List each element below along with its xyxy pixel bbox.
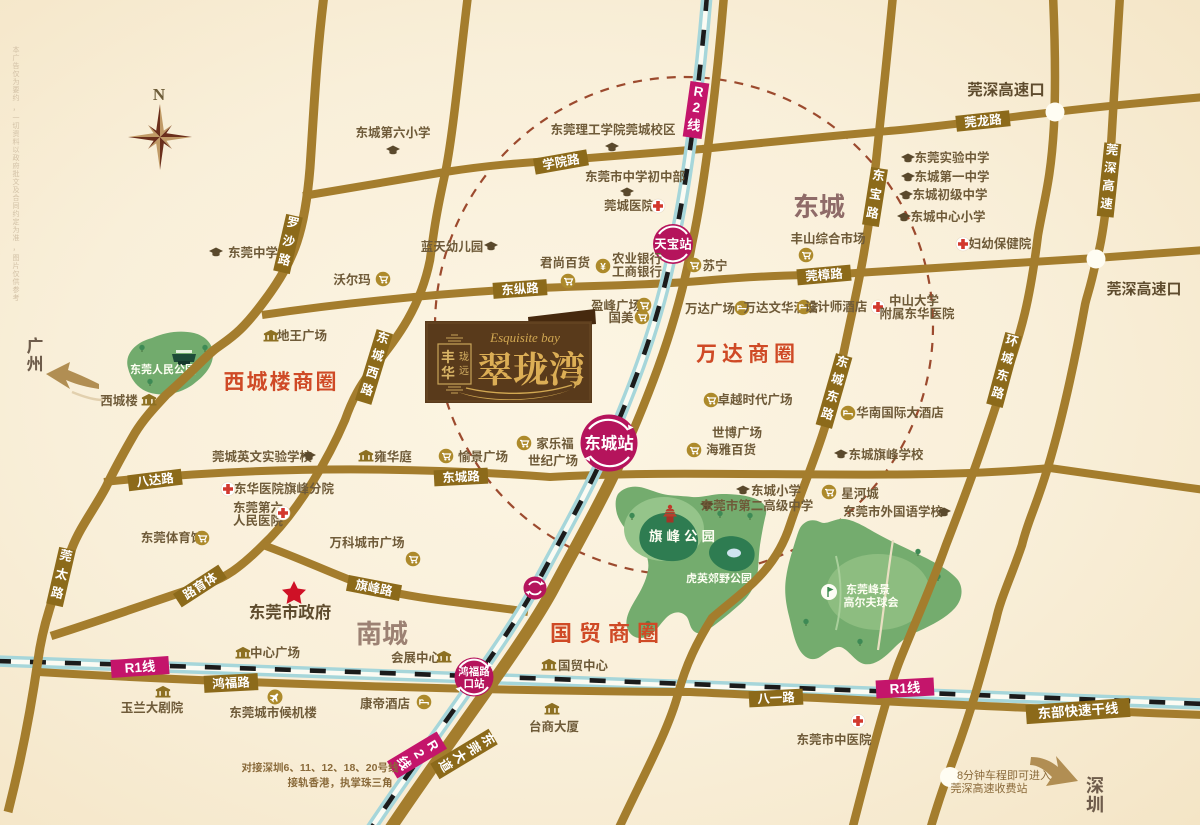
svg-text:愉景广场: 愉景广场 xyxy=(458,449,508,464)
svg-text:会展中心: 会展中心 xyxy=(391,650,442,665)
svg-text:海雅百货: 海雅百货 xyxy=(706,442,757,457)
svg-text:苏宁: 苏宁 xyxy=(702,258,727,273)
svg-text:N: N xyxy=(153,85,166,104)
svg-text:工商银行: 工商银行 xyxy=(612,264,662,279)
svg-text:国贸商圈: 国贸商圈 xyxy=(550,621,666,646)
svg-text:东莞中学: 东莞中学 xyxy=(228,245,278,260)
svg-text:Esquisite bay: Esquisite bay xyxy=(489,330,560,345)
svg-text:西城楼: 西城楼 xyxy=(100,393,138,408)
svg-text:东莞理工学院莞城校区: 东莞理工学院莞城校区 xyxy=(550,122,675,137)
svg-text:地王广场: 地王广场 xyxy=(277,328,327,343)
svg-text:旗峰公园: 旗峰公园 xyxy=(649,528,719,544)
svg-text:R1线: R1线 xyxy=(124,658,156,676)
svg-text:广: 广 xyxy=(27,337,44,356)
svg-text:东莞体育馆: 东莞体育馆 xyxy=(141,530,204,545)
svg-text:东莞实验中学: 东莞实验中学 xyxy=(914,150,989,165)
svg-text:东城旗峰学校: 东城旗峰学校 xyxy=(848,447,924,462)
svg-text:莞深高速口: 莞深高速口 xyxy=(967,80,1045,99)
svg-text:接轨香港，执掌珠三角: 接轨香港，执掌珠三角 xyxy=(288,776,393,789)
svg-text:莞城英文实验学校: 莞城英文实验学校 xyxy=(212,449,313,464)
svg-text:东莞第六: 东莞第六 xyxy=(233,500,283,515)
svg-text:鸿福路: 鸿福路 xyxy=(458,665,490,678)
svg-text:州: 州 xyxy=(27,355,44,374)
svg-text:农业银行: 农业银行 xyxy=(612,251,662,266)
svg-text:鸿福路: 鸿福路 xyxy=(212,674,251,691)
svg-text:东莞市第二高级中学: 东莞市第二高级中学 xyxy=(701,498,814,513)
svg-text:莞深高速口: 莞深高速口 xyxy=(1106,280,1181,298)
svg-text:康帝酒店: 康帝酒店 xyxy=(360,696,410,711)
svg-text:本广告仅为要约，一切资料以政府批文及合同约定为准，图片仅供参: 本广告仅为要约，一切资料以政府批文及合同约定为准，图片仅供参考 xyxy=(13,45,20,302)
svg-text:万达商圈: 万达商圈 xyxy=(696,343,800,366)
svg-text:东城第六小学: 东城第六小学 xyxy=(355,125,430,140)
svg-text:圳: 圳 xyxy=(1086,795,1104,815)
svg-text:君尚百货: 君尚百货 xyxy=(540,255,591,270)
svg-text:世纪广场: 世纪广场 xyxy=(528,453,578,468)
svg-text:东莞市外国语学校: 东莞市外国语学校 xyxy=(843,504,944,519)
svg-text:东城中心小学: 东城中心小学 xyxy=(910,209,985,224)
svg-text:雍华庭: 雍华庭 xyxy=(374,449,412,464)
svg-text:中心广场: 中心广场 xyxy=(250,645,300,660)
svg-text:东莞城市候机楼: 东莞城市候机楼 xyxy=(229,705,317,720)
svg-text:东城路: 东城路 xyxy=(442,468,481,485)
svg-text:丰: 丰 xyxy=(441,349,455,365)
svg-text:中山大学: 中山大学 xyxy=(889,293,939,308)
svg-text:丰山综合市场: 丰山综合市场 xyxy=(790,231,865,246)
svg-text:东华医院旗峰分院: 东华医院旗峰分院 xyxy=(234,481,335,496)
svg-text:东城: 东城 xyxy=(793,192,845,222)
svg-text:华南国际大酒店: 华南国际大酒店 xyxy=(856,405,944,420)
svg-text:高尔夫球会: 高尔夫球会 xyxy=(844,595,899,609)
svg-text:国美: 国美 xyxy=(608,310,634,325)
svg-text:国贸中心: 国贸中心 xyxy=(558,658,609,673)
svg-text:万科城市广场: 万科城市广场 xyxy=(329,535,404,550)
svg-text:对接深圳6、11、12、18、20号线: 对接深圳6、11、12、18、20号线 xyxy=(242,761,399,774)
svg-text:家乐福: 家乐福 xyxy=(536,436,574,451)
svg-text:口站: 口站 xyxy=(464,677,485,690)
svg-text:莞城医院: 莞城医院 xyxy=(604,198,655,213)
svg-text:蓝天幼儿园: 蓝天幼儿园 xyxy=(421,239,484,254)
svg-text:华: 华 xyxy=(441,365,455,381)
svg-text:珑: 珑 xyxy=(459,351,469,363)
svg-text:八一路: 八一路 xyxy=(757,689,796,706)
svg-text:设计师酒店: 设计师酒店 xyxy=(805,299,868,314)
svg-text:附属东华医院: 附属东华医院 xyxy=(879,306,955,321)
svg-text:玉兰大剧院: 玉兰大剧院 xyxy=(121,700,184,715)
svg-text:人民医院: 人民医院 xyxy=(233,513,284,528)
svg-text:台商大厦: 台商大厦 xyxy=(529,719,580,734)
svg-text:东莞峰景: 东莞峰景 xyxy=(846,582,890,596)
svg-text:东城站: 东城站 xyxy=(584,433,634,453)
svg-text:远: 远 xyxy=(459,365,469,377)
svg-text:东莞市政府: 东莞市政府 xyxy=(249,602,332,622)
svg-text:万达广场: 万达广场 xyxy=(685,301,735,316)
svg-text:卓越时代广场: 卓越时代广场 xyxy=(717,392,792,407)
svg-text:莞深高速收费站: 莞深高速收费站 xyxy=(951,781,1028,795)
svg-text:西城楼商圈: 西城楼商圈 xyxy=(224,371,339,394)
svg-text:翠珑湾: 翠珑湾 xyxy=(477,350,586,390)
svg-text:东纵路: 东纵路 xyxy=(501,280,540,298)
svg-text:天宝站: 天宝站 xyxy=(654,237,692,252)
svg-text:东城第一中学: 东城第一中学 xyxy=(914,169,989,184)
svg-text:深: 深 xyxy=(1086,776,1104,796)
svg-text:东莞市中学初中部: 东莞市中学初中部 xyxy=(585,169,686,184)
svg-text:沃尔玛: 沃尔玛 xyxy=(333,272,371,287)
svg-text:南城: 南城 xyxy=(356,619,408,649)
svg-text:R1线: R1线 xyxy=(889,679,921,697)
svg-text:8分钟车程即可进入: 8分钟车程即可进入 xyxy=(957,768,1051,782)
svg-text:东城初级中学: 东城初级中学 xyxy=(912,187,987,202)
svg-text:星河城: 星河城 xyxy=(841,486,879,501)
svg-text:东莞市中医院: 东莞市中医院 xyxy=(796,732,872,747)
svg-text:世博广场: 世博广场 xyxy=(712,425,762,440)
svg-text:妇幼保健院: 妇幼保健院 xyxy=(969,236,1032,251)
svg-text:虎英郊野公园: 虎英郊野公园 xyxy=(686,571,752,585)
svg-text:东城小学: 东城小学 xyxy=(751,483,801,498)
